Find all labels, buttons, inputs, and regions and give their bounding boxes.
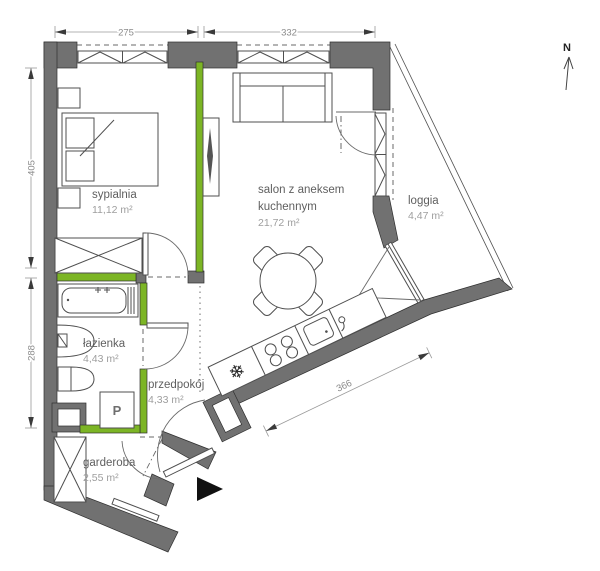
green-wall-bedroom-salon <box>196 62 203 272</box>
nightstand-bottom <box>58 188 80 208</box>
bed <box>62 113 158 186</box>
label-salon-line2: kuchennym <box>258 201 317 213</box>
north-arrow: N <box>563 42 573 90</box>
sofa <box>233 73 332 122</box>
area-salon: 21,72 m² <box>258 217 300 229</box>
floor-plan-svg: ❄ <box>0 0 600 571</box>
nightstand-top <box>58 88 80 108</box>
area-loggia: 4,47 m² <box>408 210 444 222</box>
dim-top-left: 275 <box>55 26 198 39</box>
dim-left-lower: 288 <box>25 278 38 428</box>
loggia-railing <box>390 44 513 291</box>
label-salon-line1: salon z aneksem <box>258 184 344 196</box>
entrance-marker-triangle <box>197 477 223 501</box>
garderoba-wardrobe <box>54 437 86 502</box>
dim-label-275: 275 <box>118 28 134 39</box>
bathroom-door <box>145 323 188 369</box>
toilet <box>58 367 94 391</box>
label-garderoba: garderoba <box>83 457 136 469</box>
label-sypialnia: sypialnia <box>92 189 137 201</box>
label-lazienka: łazienka <box>83 338 126 350</box>
dim-label-332: 332 <box>281 28 297 39</box>
bedroom-door <box>143 233 188 275</box>
wall-top-right-corner <box>330 42 390 110</box>
tv-unit <box>203 118 219 196</box>
bedroom-wardrobe <box>55 238 142 273</box>
green-wall-bathroom-upper <box>140 283 147 325</box>
north-label: N <box>563 42 571 54</box>
dim-top-right: 332 <box>204 26 375 39</box>
dim-label-366: 366 <box>335 378 354 395</box>
bedroom-window <box>78 51 167 63</box>
bathtub <box>58 284 138 317</box>
area-lazienka: 4,43 m² <box>83 353 119 365</box>
dim-left-upper: 405 <box>25 68 38 268</box>
label-loggia: loggia <box>408 195 439 207</box>
area-przedpokoj: 4,33 m² <box>148 394 184 406</box>
dim-label-405: 405 <box>27 160 38 176</box>
salon-window <box>238 51 329 63</box>
dining-table <box>251 244 324 317</box>
wall-right-pier <box>373 196 398 248</box>
green-wall-bathroom-lower <box>140 369 147 433</box>
area-sypialnia: 11,12 m² <box>92 204 133 216</box>
washing-machine: P <box>100 392 134 428</box>
label-przedpokoj: przedpokój <box>148 379 204 391</box>
wall-bedroom-door-jamb-right <box>188 271 204 283</box>
area-garderoba: 2,55 m² <box>83 472 119 484</box>
floor-plan-page: ❄ <box>0 0 600 571</box>
dim-label-288: 288 <box>27 345 38 361</box>
washer-label: P <box>113 403 122 418</box>
